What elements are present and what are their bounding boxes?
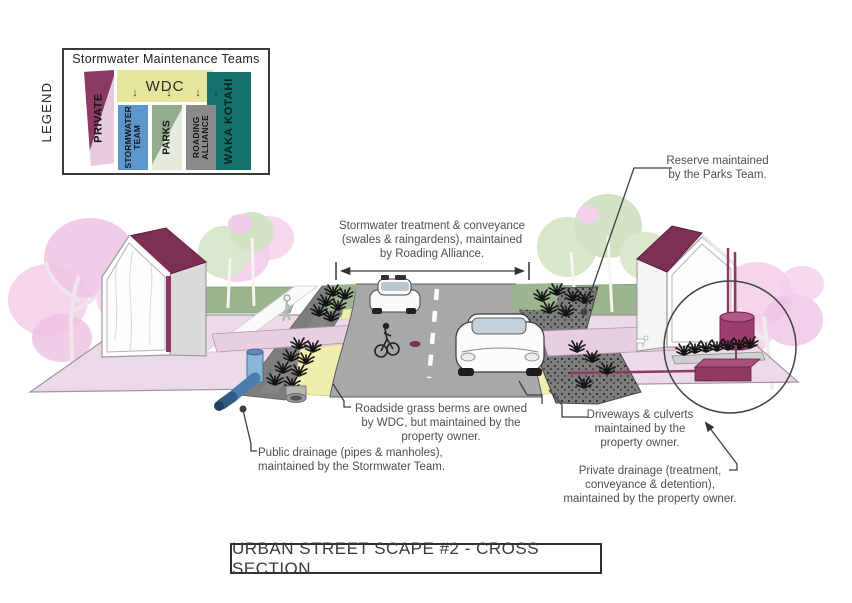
culvert xyxy=(286,386,306,403)
legend-stormwater-label: STORMWATER TEAM xyxy=(124,106,143,169)
down-arrow-icon: ↓ xyxy=(129,88,141,99)
legend-col-parks: PARKS xyxy=(152,105,182,170)
leader-public-drainage xyxy=(243,410,257,451)
down-arrow-icon: ↓ xyxy=(210,88,222,99)
car-far xyxy=(370,275,420,314)
annotation-berms: Roadside grass berms are owned by WDC, b… xyxy=(346,402,536,444)
legend-col-private: PRIVATE xyxy=(84,70,114,166)
legend-parks-label: PARKS xyxy=(162,120,173,154)
car-near xyxy=(456,314,544,376)
legend-col-roading-alliance: ROADING ALLIANCE xyxy=(186,105,216,170)
legend-private-label: PRIVATE xyxy=(93,93,105,143)
legend-col-stormwater-team: STORMWATER TEAM xyxy=(118,105,148,170)
annotation-stormwater-treatment: Stormwater treatment & conveyance (swale… xyxy=(327,219,537,261)
cross-section-diagram: LEGEND Stormwater Maintenance Teams PRIV… xyxy=(0,0,852,603)
down-arrow-icon: ↓ xyxy=(163,88,175,99)
detention-box xyxy=(695,359,760,381)
legend-roading-label: ROADING ALLIANCE xyxy=(192,115,211,160)
legend-title: Stormwater Maintenance Teams xyxy=(64,52,268,66)
drawing-title: URBAN STREET SCAPE #2 - CROSS SECTION xyxy=(230,543,602,574)
legend-label-text: LEGEND xyxy=(40,82,54,143)
legend: Stormwater Maintenance Teams PRIVATE WDC… xyxy=(62,48,270,175)
annotation-private-drainage: Private drainage (treatment, conveyance … xyxy=(545,464,755,506)
drawing-title-text: URBAN STREET SCAPE #2 - CROSS SECTION xyxy=(232,539,600,579)
road-manhole xyxy=(410,341,421,347)
legend-waka-label: WAKA KOTAHI xyxy=(223,78,235,164)
annotation-public-drainage: Public drainage (pipes & manholes), main… xyxy=(258,446,478,474)
annotation-driveways: Driveways & culverts maintained by the p… xyxy=(565,408,715,450)
down-arrow-icon: ↓ xyxy=(192,88,204,99)
annotation-reserve: Reserve maintained by the Parks Team. xyxy=(650,154,785,182)
